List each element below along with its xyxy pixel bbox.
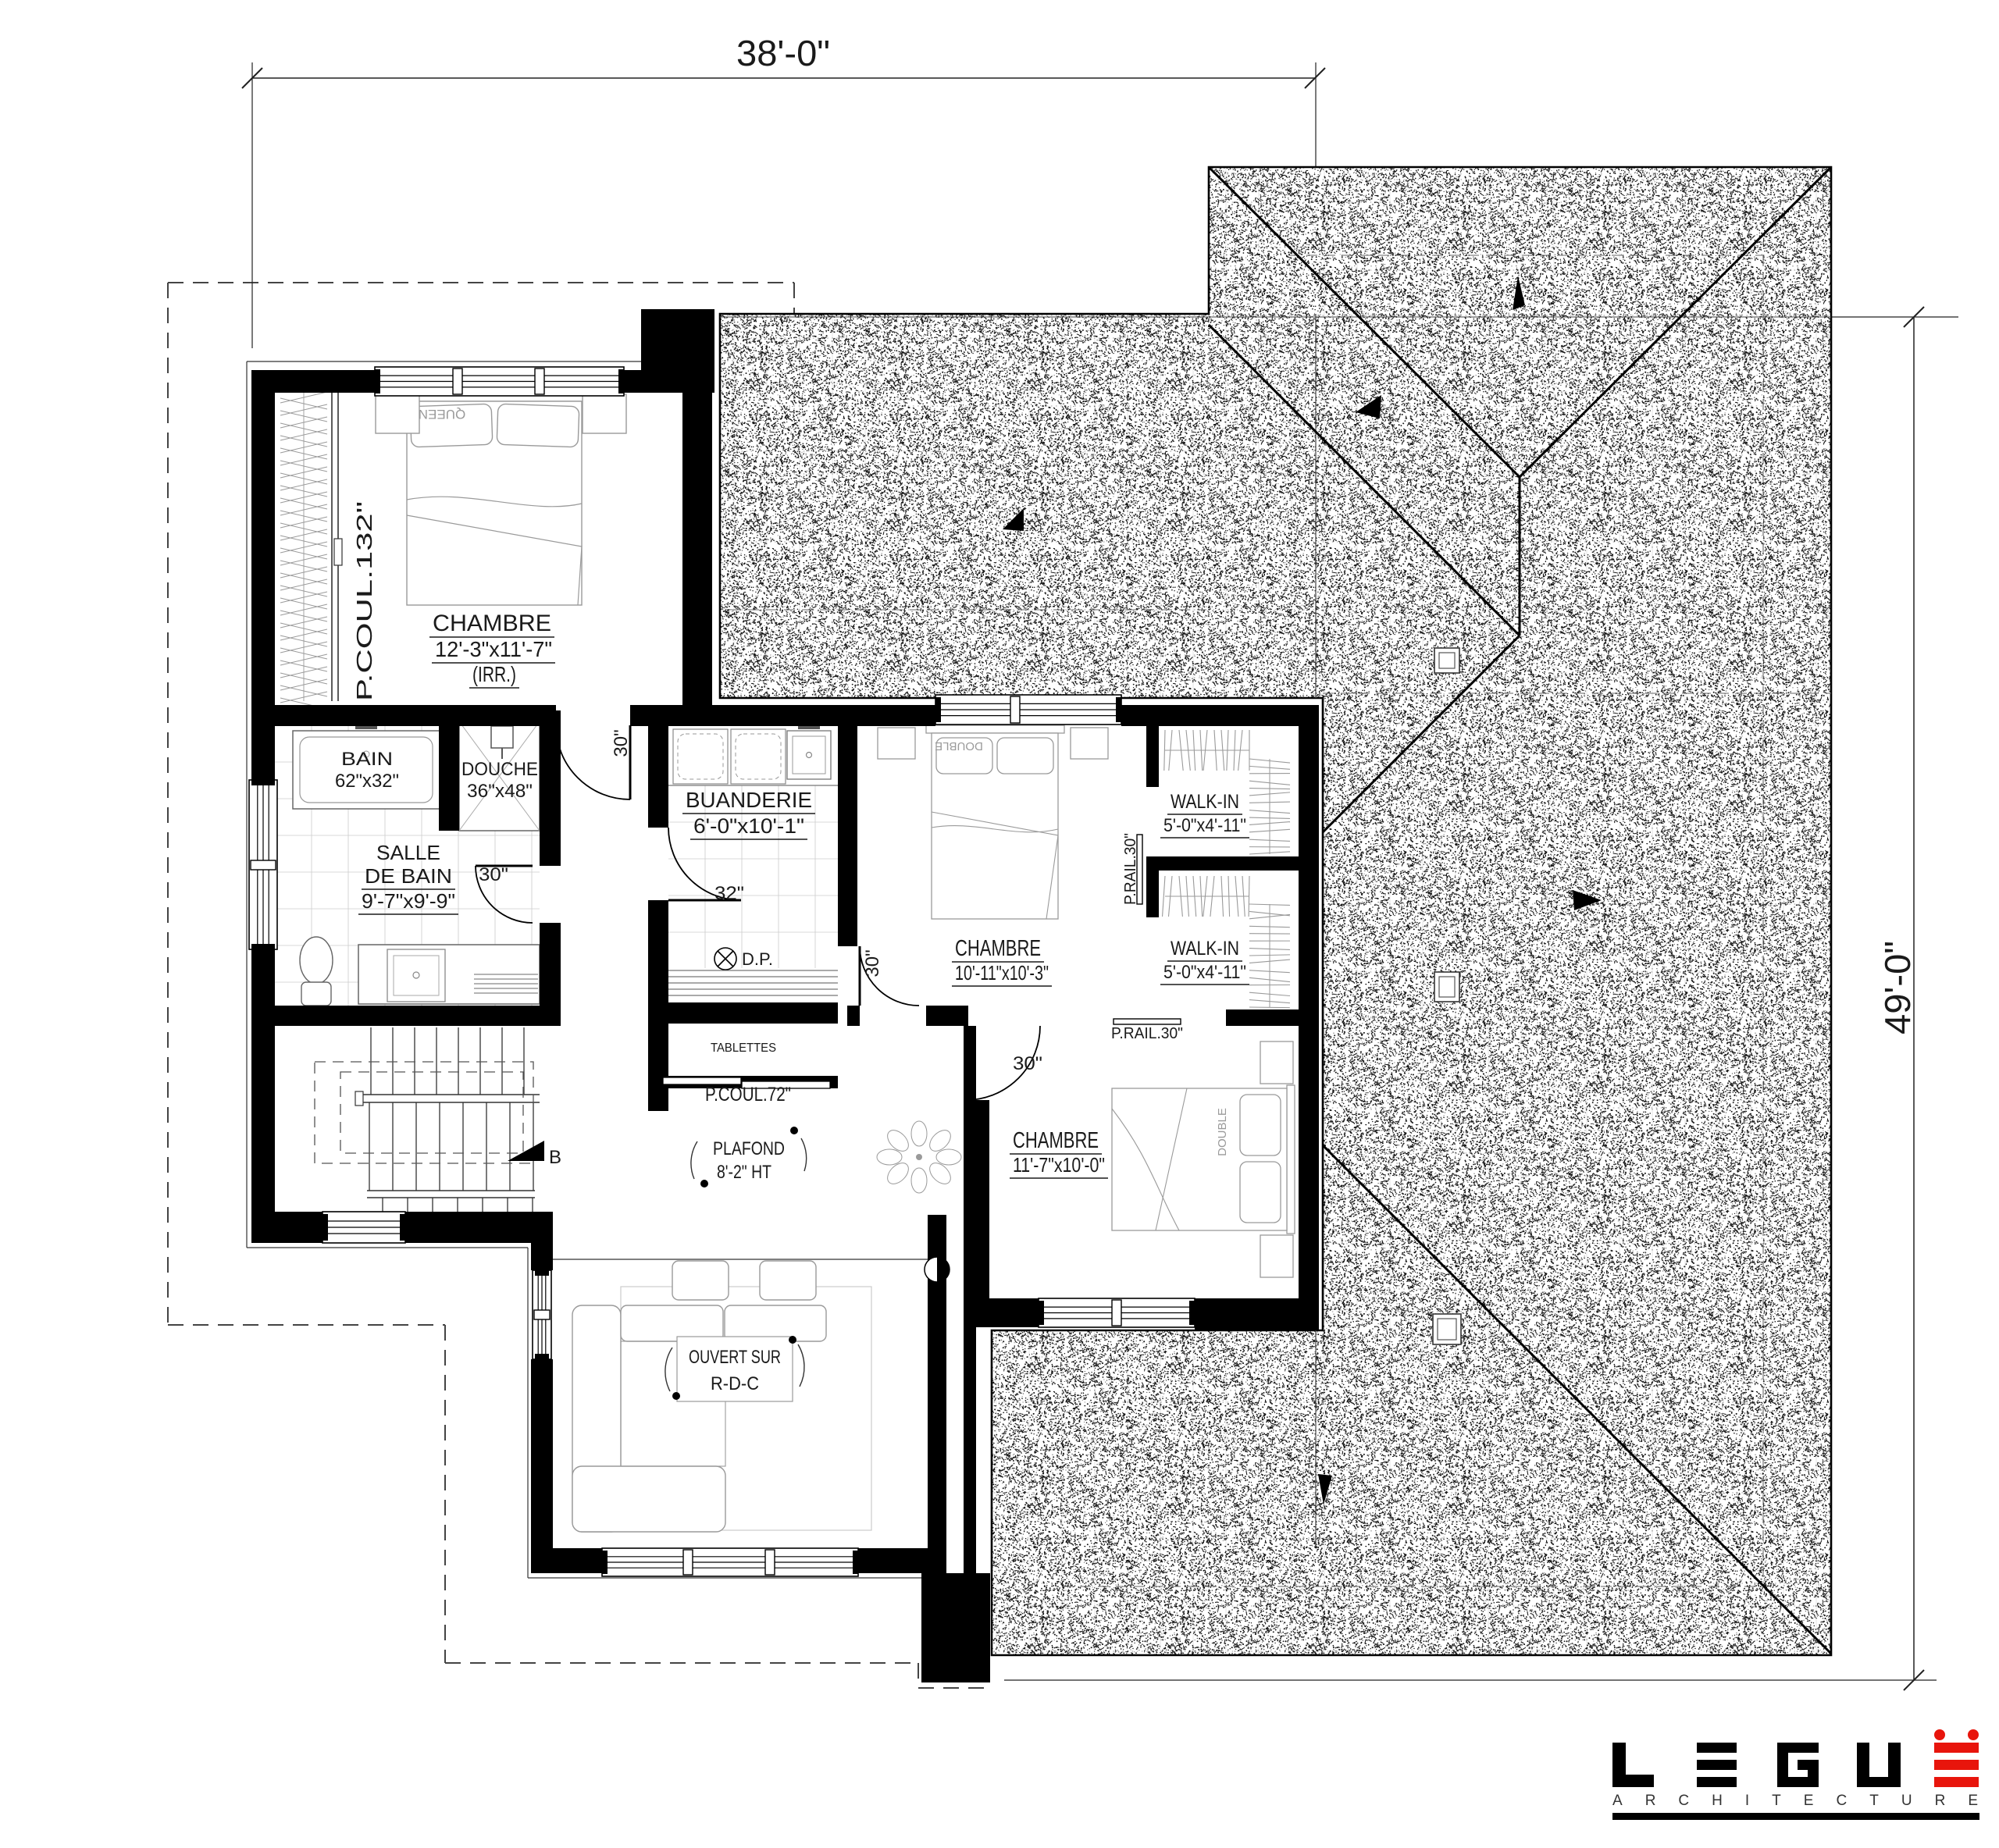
svg-text:30": 30": [611, 729, 632, 757]
svg-text:49'-0": 49'-0": [1877, 941, 1918, 1034]
svg-text:10'-11"x10'-3": 10'-11"x10'-3": [955, 961, 1049, 985]
svg-text:38'-0": 38'-0": [736, 33, 830, 73]
svg-text:CHAMBRE: CHAMBRE: [433, 611, 551, 636]
svg-text:32": 32": [714, 883, 744, 904]
svg-text:DOUBLE: DOUBLE: [1216, 1108, 1229, 1156]
svg-text:62"x32": 62"x32": [335, 771, 399, 792]
svg-text:TABLETTES: TABLETTES: [711, 1042, 776, 1055]
svg-text:CHAMBRE: CHAMBRE: [955, 936, 1041, 961]
svg-text:WALK-IN: WALK-IN: [1171, 791, 1239, 813]
svg-text:5'-0"x4'-11": 5'-0"x4'-11": [1163, 815, 1246, 836]
svg-text:11'-7"x10'-0": 11'-7"x10'-0": [1013, 1153, 1105, 1177]
svg-text:9'-7"x9'-9": 9'-7"x9'-9": [362, 889, 455, 913]
svg-text:12'-3"x11'-7": 12'-3"x11'-7": [435, 637, 552, 661]
svg-text:30": 30": [862, 949, 883, 977]
svg-text:DOUCHE: DOUCHE: [461, 759, 538, 780]
svg-text:6'-0"x10'-1": 6'-0"x10'-1": [693, 814, 804, 838]
svg-text:CHAMBRE: CHAMBRE: [1013, 1128, 1099, 1153]
svg-text:WALK-IN: WALK-IN: [1171, 938, 1239, 960]
svg-text:30": 30": [1013, 1053, 1042, 1074]
svg-text:PLAFOND: PLAFOND: [713, 1138, 785, 1159]
svg-text:R-D-C: R-D-C: [711, 1373, 759, 1394]
svg-text:DOUBLE: DOUBLE: [935, 739, 983, 753]
svg-text:8'-2" HT: 8'-2" HT: [717, 1162, 771, 1183]
svg-text:QUEEN: QUEEN: [419, 407, 465, 422]
svg-text:OUVERT SUR: OUVERT SUR: [689, 1347, 781, 1368]
svg-text:BAIN: BAIN: [341, 749, 393, 770]
svg-text:P.COUL.132": P.COUL.132": [352, 501, 376, 701]
svg-text:P.RAIL.30": P.RAIL.30": [1111, 1025, 1183, 1042]
svg-text:P.COUL.72": P.COUL.72": [705, 1084, 791, 1106]
svg-text:DE BAIN: DE BAIN: [365, 864, 452, 888]
svg-text:B: B: [549, 1147, 561, 1168]
svg-text:D.P.: D.P.: [742, 949, 773, 969]
svg-text:30": 30": [479, 864, 508, 885]
svg-text:(IRR.): (IRR.): [472, 662, 516, 686]
svg-text:BUANDERIE: BUANDERIE: [686, 788, 812, 812]
svg-text:36"x48": 36"x48": [467, 781, 533, 802]
svg-text:SALLE: SALLE: [376, 841, 440, 864]
svg-text:5'-0"x4'-11": 5'-0"x4'-11": [1163, 962, 1246, 983]
